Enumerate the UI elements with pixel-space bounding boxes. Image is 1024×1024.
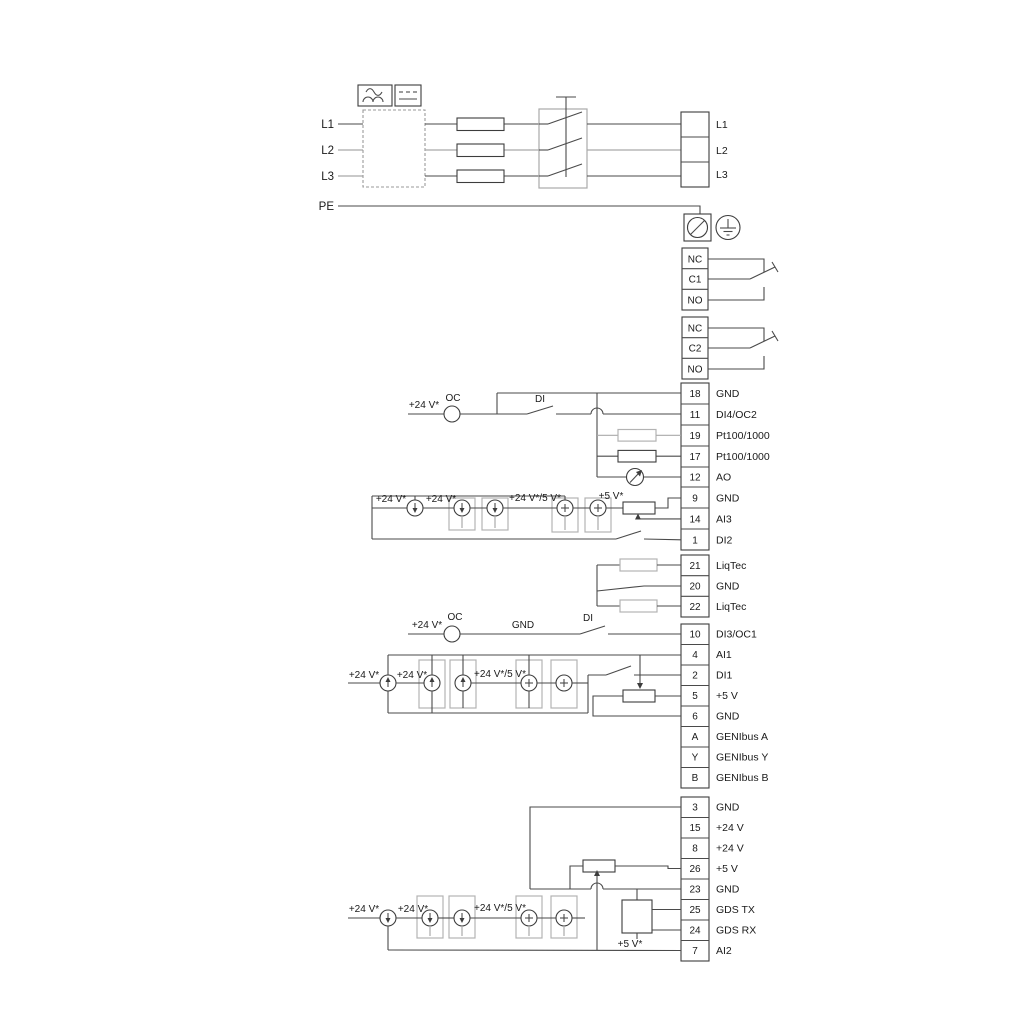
rcd-pulse-symbol [358, 85, 392, 106]
fuse-l2 [457, 144, 504, 157]
relay2-no: NO [688, 365, 703, 376]
t7-num: 7 [692, 946, 698, 957]
g1-di4-circuit: +24 V* OC DI [408, 393, 681, 486]
input-label-pe: PE [319, 201, 335, 213]
current-source-icon [380, 910, 396, 926]
fuse-l1 [457, 118, 504, 131]
label-24v: +24 V* [349, 904, 379, 915]
plus-source-icon [556, 910, 572, 926]
ai2-source-group: +24 V* +24 V* +24 V*/5 V* [348, 896, 585, 950]
t4-label: AI1 [716, 649, 732, 661]
label-24v: +24 V* [398, 904, 428, 915]
di3-circuit: +24 V* OC GND DI [408, 612, 681, 642]
t8-num: 8 [692, 844, 698, 855]
t24-num: 24 [689, 926, 701, 937]
label-24v: +24 V* [412, 620, 442, 631]
current-source-icon [454, 500, 470, 516]
oc-output-icon [444, 406, 460, 422]
t7-label: AI2 [716, 945, 732, 957]
wiring-diagram: L1 L2 L3 PE [0, 0, 1024, 1024]
analog-output-icon [627, 469, 644, 486]
t23-label: GND [716, 884, 740, 896]
label-oc: OC [446, 393, 461, 404]
current-source-icon [380, 675, 396, 691]
terminal-strip-g1: 18 11 19 17 12 9 14 1 GND DI4/OC2 Pt100/… [681, 383, 770, 550]
t22-label: LiqTec [716, 601, 746, 613]
t19-num: 19 [689, 431, 701, 442]
current-source-icon [454, 910, 470, 926]
relay2-contact [708, 328, 778, 369]
t4-num: 4 [692, 650, 698, 661]
t26-num: 26 [689, 864, 701, 875]
label-di: DI [535, 394, 545, 405]
t24-label: GDS RX [716, 925, 756, 937]
power-terminal-block: L1 L2 L3 [681, 112, 728, 187]
di2-switch [616, 531, 641, 539]
relay1-nc: NC [688, 255, 702, 266]
t19-label: Pt100/1000 [716, 430, 770, 442]
ty-label: GENIbus Y [716, 752, 768, 764]
terminal-strip-g3: 10 4 2 5 6 A Y B DI3/OC1 AI1 DI1 +5 V GN… [681, 624, 769, 788]
liqtec-resistor-2 [620, 600, 657, 612]
relay1-c1: C1 [689, 275, 702, 286]
rcd-dc-symbol [395, 85, 421, 106]
label-24v: +24 V* [376, 494, 406, 505]
di1-switch [606, 666, 631, 675]
current-source-icon [487, 500, 503, 516]
label-di: DI [583, 613, 593, 624]
label-24v: +24 V* [349, 670, 379, 681]
fuse-l3 [457, 170, 504, 183]
t3-label: GND [716, 802, 740, 814]
label-5v: +5 V* [599, 491, 624, 502]
di3-switch [580, 626, 605, 634]
t15-label: +24 V [716, 822, 744, 834]
relay-2: NC C2 NO [682, 317, 778, 379]
pt100-resistor-1 [618, 430, 656, 442]
input-label-l3: L3 [321, 171, 334, 183]
label-24v-5v: +24 V*/5 V* [474, 669, 526, 680]
t17-label: Pt100/1000 [716, 451, 770, 463]
t2-label: DI1 [716, 670, 733, 682]
t9-num: 9 [692, 494, 698, 505]
potentiometer-symbol [623, 498, 681, 520]
label-24v-5v: +24 V*/5 V* [474, 903, 526, 914]
label-gnd: GND [512, 620, 534, 631]
power-input-section: L1 L2 L3 PE [319, 85, 740, 241]
terminal-strip-liqtec: 21 20 22 LiqTec GND LiqTec [597, 555, 746, 617]
t18-label: GND [716, 388, 740, 400]
t9-label: GND [716, 493, 740, 505]
plus-source-icon [590, 500, 606, 516]
di4-switch [527, 406, 553, 414]
t12-num: 12 [689, 473, 701, 484]
input-label-l1: L1 [321, 119, 334, 131]
t10-num: 10 [689, 630, 701, 641]
t14-label: AI3 [716, 514, 732, 526]
liqtec-resistor-1 [620, 559, 657, 571]
tb-label: GENIbus B [716, 772, 769, 784]
t20-label: GND [716, 581, 740, 593]
relay1-no: NO [688, 296, 703, 307]
ta-label: GENIbus A [716, 731, 768, 743]
t5-label: +5 V [716, 690, 738, 702]
t15-num: 15 [689, 823, 701, 834]
pe-terminal [338, 206, 711, 241]
t11-label: DI4/OC2 [716, 409, 757, 421]
potentiometer-symbol [593, 655, 681, 716]
t5-num: 5 [692, 691, 698, 702]
relay1-contact [708, 259, 778, 300]
ai3-source-group: +24 V* +24 V* +24 V*/5 V* +5 V* [372, 491, 681, 540]
relay2-c2: C2 [689, 344, 702, 355]
t3-num: 3 [692, 803, 698, 814]
label-24v: +24 V* [409, 400, 439, 411]
out-label-l3: L3 [716, 169, 728, 181]
relay2-nc: NC [688, 324, 702, 335]
pt100-resistor-2 [618, 450, 656, 462]
plus-source-icon [556, 675, 572, 691]
earth-icon [716, 216, 740, 240]
t25-label: GDS TX [716, 904, 755, 916]
t23-num: 23 [689, 885, 701, 896]
label-5v: +5 V* [618, 939, 643, 950]
relay-1: NC C1 NO [682, 248, 778, 310]
t18-num: 18 [689, 389, 701, 400]
t11-num: 11 [690, 410, 701, 421]
t12-label: AO [716, 472, 731, 484]
t17-num: 17 [689, 452, 701, 463]
label-24v: +24 V* [397, 670, 427, 681]
label-24v-5v: +24 V*/5 V* [509, 493, 561, 504]
tb-num: B [692, 773, 699, 784]
current-source-icon [455, 675, 471, 691]
oc-output-icon [444, 626, 460, 642]
label-24v: +24 V* [426, 494, 456, 505]
liqtec-sensor-circuit [597, 559, 681, 612]
t21-label: LiqTec [716, 560, 746, 572]
t8-label: +24 V [716, 843, 744, 855]
t10-label: DI3/OC1 [716, 629, 757, 641]
t1-label: DI2 [716, 535, 733, 547]
ta-num: A [692, 732, 699, 743]
t1-num: 1 [692, 536, 698, 547]
current-source-icon [407, 500, 423, 516]
out-label-l2: L2 [716, 145, 728, 157]
t6-num: 6 [692, 712, 698, 723]
out-label-l1: L1 [716, 119, 728, 131]
t22-num: 22 [689, 602, 701, 613]
t25-num: 25 [689, 905, 701, 916]
ai1-source-group: +24 V* +24 V* +24 V*/5 V* [348, 655, 681, 716]
terminal-strip-g4: 3 15 8 26 23 25 24 7 GND +24 V +24 V +5 … [681, 797, 756, 961]
ai2-gds-circuit: +5 V* [388, 807, 681, 951]
t14-num: 14 [689, 515, 701, 526]
t6-label: GND [716, 711, 740, 723]
gds-sensor-box [622, 889, 681, 939]
label-oc: OC [448, 612, 463, 623]
t2-num: 2 [692, 671, 698, 682]
t20-num: 20 [689, 582, 701, 593]
ty-num: Y [692, 753, 699, 764]
t21-num: 21 [689, 561, 701, 572]
main-switch [539, 97, 587, 188]
input-label-l2: L2 [321, 145, 334, 157]
rcd-filter-box [363, 110, 425, 187]
t26-label: +5 V [716, 863, 738, 875]
